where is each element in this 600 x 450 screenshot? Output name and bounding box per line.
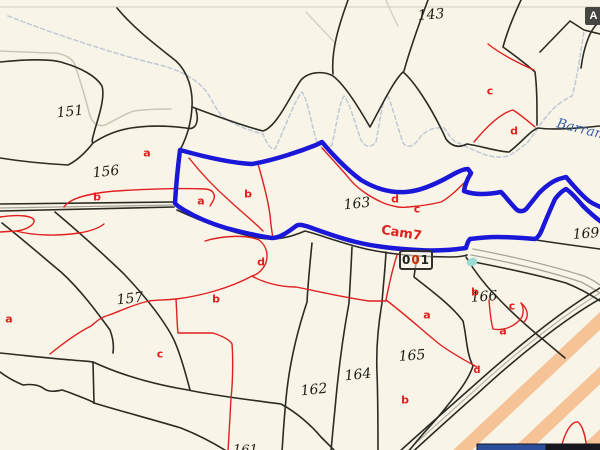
subparcel-letter-label: c: [157, 349, 164, 360]
parcel-number-label: 157: [116, 291, 144, 308]
parcel-number-label: 164: [344, 367, 372, 384]
parcel-number-label: 165: [398, 348, 426, 364]
parcel-number-label: 143: [417, 7, 445, 23]
subparcel-letter-label: a: [423, 310, 430, 321]
parcel-number-label: 169: [572, 226, 600, 242]
parcel-number-label: 162: [300, 382, 328, 399]
subparcel-letter-label: b: [471, 287, 479, 298]
subparcel-letter-label: c: [509, 301, 516, 312]
subparcel-letter-label: d: [473, 366, 480, 376]
selected-subparcel-digit: 0: [411, 254, 420, 266]
subparcel-letter-label: a: [5, 314, 12, 325]
subparcel-letter-label: b: [401, 395, 409, 406]
subparcel-letter-label: b: [244, 189, 252, 200]
subparcel-boundaries: [0, 44, 587, 450]
subparcel-letter-label: a: [143, 148, 150, 159]
selected-subparcel-badge: 001: [399, 250, 433, 270]
selected-subparcel-digit: 1: [421, 254, 430, 266]
subparcel-letter-label: a: [499, 326, 506, 337]
parcel-number-label: 151: [56, 104, 84, 121]
selected-subparcel-digit: 0: [402, 254, 411, 266]
subparcel-letter-label: d: [510, 126, 518, 137]
parcel-number-label: 163: [343, 196, 371, 213]
subparcel-letter-label: c: [414, 204, 421, 215]
subparcel-letter-label: d: [257, 257, 265, 268]
clipped-parcel-number: 161: [233, 444, 258, 450]
parcel-number-label: 156: [92, 164, 120, 181]
bottom-legend-bar: [477, 444, 600, 450]
highway-stripes: [450, 305, 600, 450]
subparcel-letter-label: a: [197, 196, 204, 207]
attribute-tool-button[interactable]: A: [585, 7, 600, 25]
map-canvas[interactable]: 143151156157162163164165166169ababcddcdb…: [0, 0, 600, 450]
subparcel-letter-label: d: [391, 194, 399, 205]
subparcel-letter-label: b: [212, 294, 220, 305]
subparcel-letter-label: c: [487, 86, 494, 97]
subparcel-letter-label: b: [93, 192, 101, 203]
